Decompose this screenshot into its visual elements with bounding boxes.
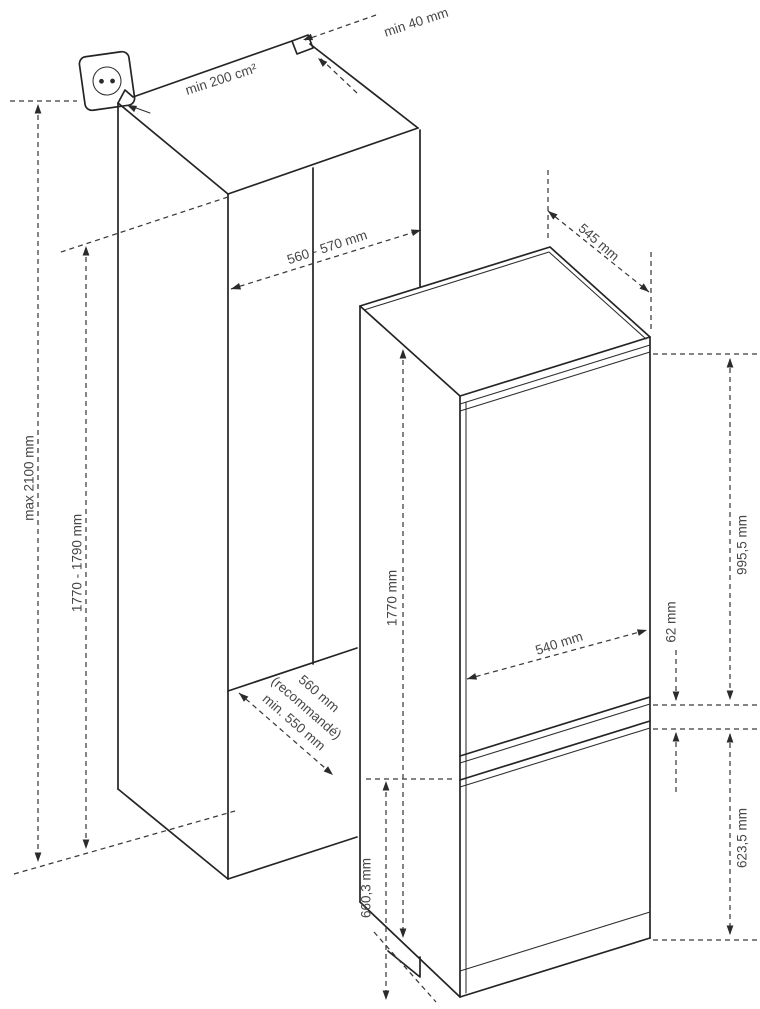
ref-niche-top-ext xyxy=(58,197,228,253)
socket-well xyxy=(91,65,123,97)
niche-roof-right-depth-edge xyxy=(310,44,418,128)
label-upper-door-height: 995,5 mm xyxy=(735,515,750,575)
freezer-door-top-trim xyxy=(460,728,650,787)
niche-roof-back-edge xyxy=(228,128,418,194)
label-appliance-depth: 545 mm xyxy=(576,221,623,264)
label-door-gap: 62 mm xyxy=(664,601,679,642)
power-socket-icon xyxy=(78,51,135,111)
label-lower-door-height: 623,5 mm xyxy=(735,808,750,868)
label-max-height: max 2100 mm xyxy=(22,435,37,521)
socket-pin-left xyxy=(99,79,104,84)
label-door-width: 540 mm xyxy=(534,629,585,658)
installation-diagram: min 40 mm min 200 cm² 560 - 570 mm max 2… xyxy=(0,0,760,1009)
label-niche-depth: 560 mm (recommandé) min. 550 mm xyxy=(256,659,357,757)
fridge-base-front-edge xyxy=(460,938,650,997)
label-appliance-height: 1770 mm xyxy=(385,570,400,626)
leader-vent-gap-1 xyxy=(305,15,376,40)
niche-top-left-depth-edge xyxy=(118,103,228,194)
upper-door-bottom-trim xyxy=(460,704,650,763)
freezer-door-top-edge xyxy=(460,721,650,780)
installation-diagram-page: min 40 mm min 200 cm² 560 - 570 mm max 2… xyxy=(0,0,760,1009)
niche-bottom-left-edge xyxy=(118,789,228,879)
ref-floor-line xyxy=(14,811,235,874)
niche-base-bottom-edge xyxy=(228,837,357,879)
label-freezer-section-height: 660,3 mm xyxy=(359,858,374,918)
niche-outline xyxy=(118,35,420,977)
label-niche-width: 560 - 570 mm xyxy=(285,227,369,267)
upper-door-top-trim-2 xyxy=(460,352,650,411)
socket-plate xyxy=(78,51,135,111)
dimension-lines xyxy=(10,15,757,1002)
dimension-arrowheads xyxy=(35,34,734,1000)
socket-pin-right xyxy=(110,78,115,83)
upper-door-top-trim-1 xyxy=(460,345,650,404)
niche-roof-front-edge xyxy=(118,41,292,103)
freezer-door-bottom-trim xyxy=(460,912,650,971)
upper-door-bottom-edge xyxy=(460,697,650,756)
label-niche-height: 1770 - 1790 mm xyxy=(70,514,85,612)
label-vent-gap: min 40 mm xyxy=(382,5,450,40)
fridge-left-bottom-edge xyxy=(360,902,460,997)
